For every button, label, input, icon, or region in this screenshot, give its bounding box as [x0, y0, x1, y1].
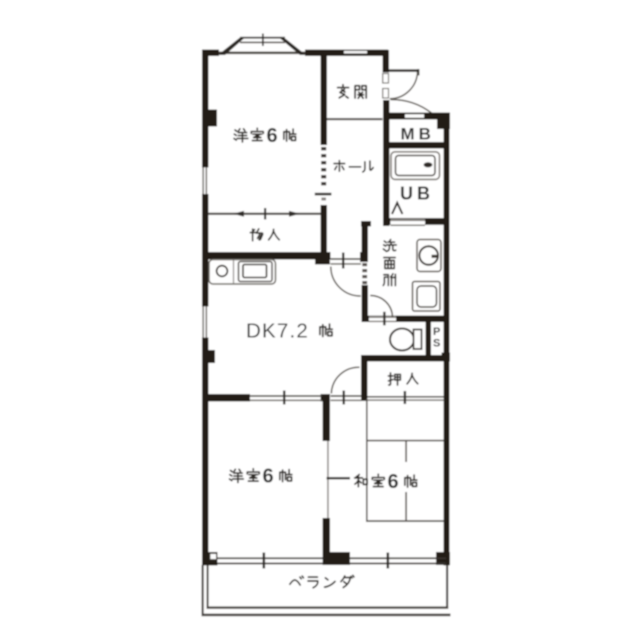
- svg-text:6: 6: [267, 125, 278, 147]
- svg-text:MB: MB: [401, 125, 435, 144]
- svg-text:DK7.2: DK7.2: [246, 320, 309, 343]
- svg-text:6: 6: [388, 471, 399, 493]
- svg-text:P: P: [433, 326, 440, 338]
- svg-text:S: S: [433, 338, 440, 350]
- svg-text:UB: UB: [400, 184, 434, 204]
- svg-text:6: 6: [263, 466, 274, 488]
